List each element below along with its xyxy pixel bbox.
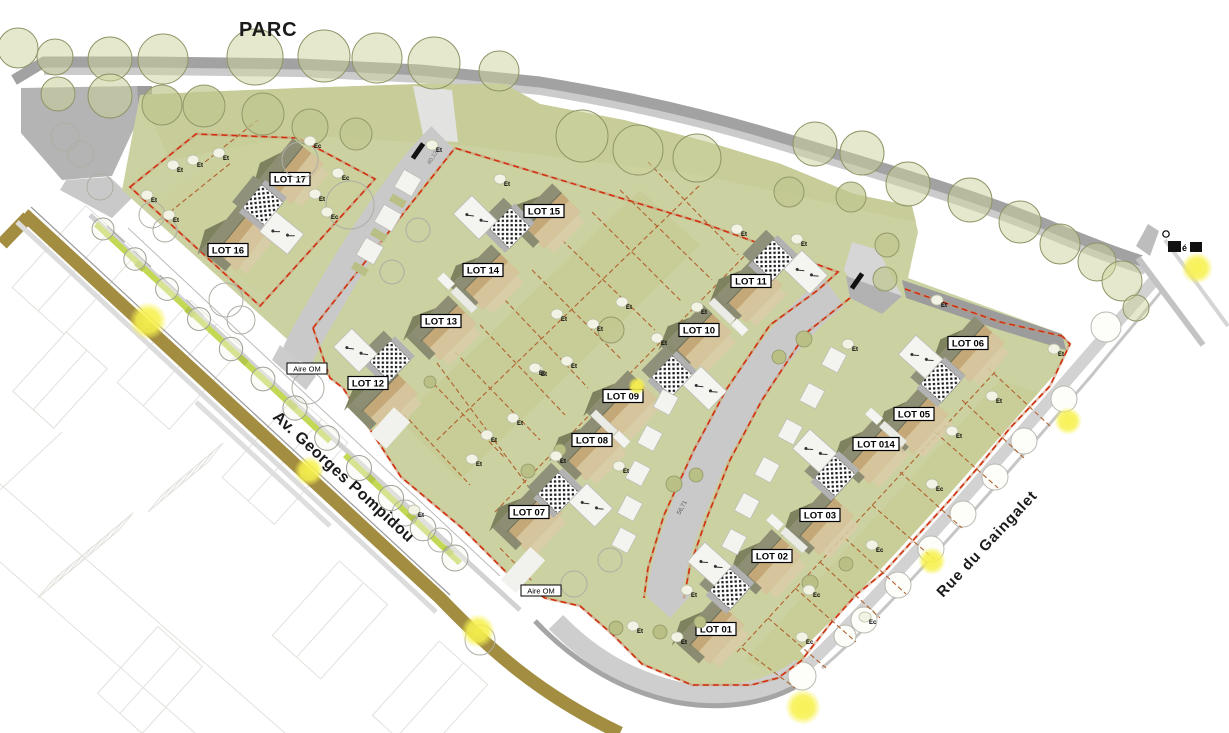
svg-text:é: é (1182, 243, 1187, 253)
svg-text:Et: Et (681, 640, 687, 646)
svg-text:LOT 06: LOT 06 (952, 339, 984, 350)
svg-text:LOT 11: LOT 11 (735, 277, 767, 288)
svg-text:Et: Et (691, 593, 697, 599)
svg-text:Aire OM: Aire OM (293, 365, 321, 374)
svg-text:LOT 08: LOT 08 (576, 436, 608, 447)
svg-text:LOT 17: LOT 17 (274, 175, 306, 186)
svg-text:LOT 02: LOT 02 (756, 552, 788, 563)
svg-text:Et: Et (476, 462, 482, 468)
svg-text:LOT 14: LOT 14 (467, 266, 500, 277)
svg-text:LOT 12: LOT 12 (352, 379, 384, 390)
svg-text:Et: Et (151, 198, 157, 204)
svg-text:Et: Et (319, 197, 325, 203)
svg-text:Ec: Ec (813, 593, 821, 599)
svg-text:Et: Et (956, 434, 962, 440)
svg-text:Et: Et (504, 182, 510, 188)
svg-text:LOT 15: LOT 15 (528, 207, 561, 218)
svg-text:Et: Et (1058, 352, 1064, 358)
svg-text:Et: Et (197, 163, 203, 169)
svg-text:LOT 014: LOT 014 (857, 440, 895, 451)
svg-text:LOT 07: LOT 07 (513, 508, 545, 519)
svg-text:Et: Et (223, 156, 229, 162)
svg-text:Et: Et (661, 341, 667, 347)
svg-text:Et: Et (597, 327, 603, 333)
svg-text:LOT 16: LOT 16 (212, 246, 244, 257)
svg-text:Ec: Ec (936, 487, 944, 493)
svg-text:LOT 05: LOT 05 (898, 410, 931, 421)
svg-text:Ec: Ec (331, 215, 339, 221)
svg-text:Et: Et (852, 347, 858, 353)
svg-text:Ec: Ec (876, 548, 884, 554)
svg-text:Et: Et (741, 232, 747, 238)
svg-text:Et: Et (418, 513, 424, 519)
svg-text:Et: Et (626, 305, 632, 311)
svg-text:Ec: Ec (806, 640, 814, 646)
svg-text:Et: Et (539, 371, 545, 377)
svg-text:Ec: Ec (314, 144, 322, 150)
svg-text:Aire OM: Aire OM (527, 587, 555, 596)
svg-text:Ec: Ec (342, 176, 350, 182)
svg-text:Et: Et (637, 629, 643, 635)
svg-text:Et: Et (571, 364, 577, 370)
svg-text:Et: Et (561, 317, 567, 323)
svg-text:Et: Et (177, 168, 183, 174)
svg-text:LOT 10: LOT 10 (683, 326, 715, 337)
svg-text:Et: Et (941, 303, 947, 309)
svg-text:Et: Et (801, 242, 807, 248)
svg-text:Et: Et (173, 218, 179, 224)
svg-text:LOT 13: LOT 13 (425, 317, 457, 328)
svg-text:LOT 03: LOT 03 (804, 511, 836, 522)
svg-text:Et: Et (491, 438, 497, 444)
svg-text:Et: Et (996, 399, 1002, 405)
svg-text:Et: Et (701, 310, 707, 316)
svg-text:Et: Et (560, 459, 566, 465)
svg-text:Ec: Ec (869, 620, 877, 626)
svg-text:Et: Et (517, 421, 523, 427)
svg-text:PARC: PARC (239, 19, 297, 41)
svg-text:Et: Et (623, 469, 629, 475)
